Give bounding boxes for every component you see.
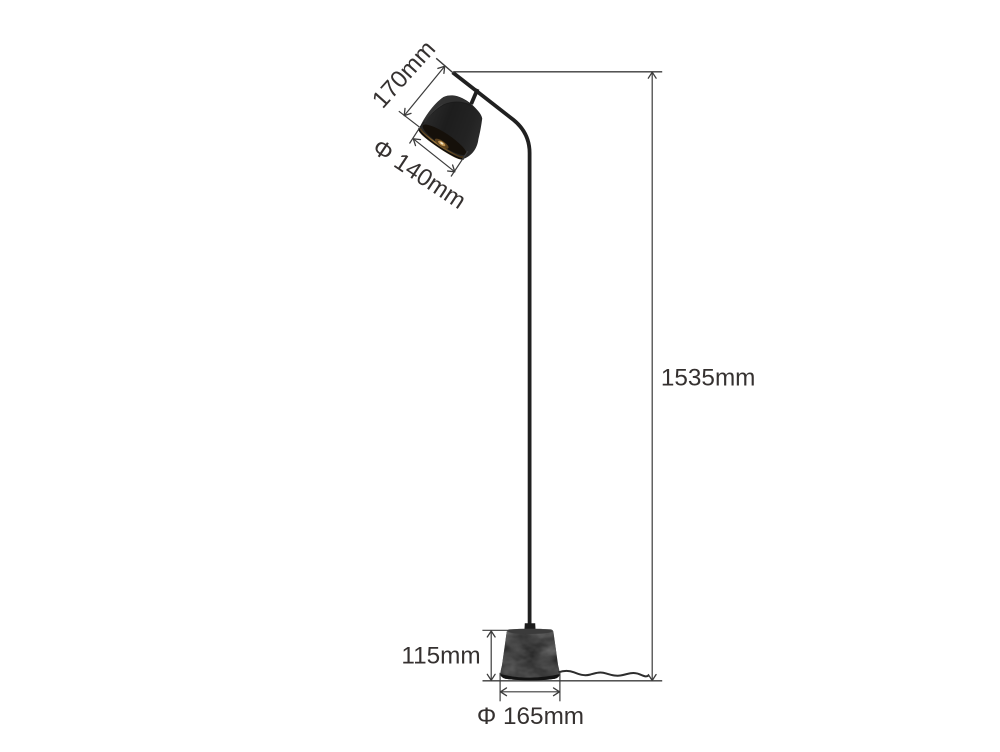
svg-text:115mm: 115mm [401,643,480,670]
svg-text:Φ 165mm: Φ 165mm [477,703,584,730]
svg-text:1535mm: 1535mm [661,364,756,391]
